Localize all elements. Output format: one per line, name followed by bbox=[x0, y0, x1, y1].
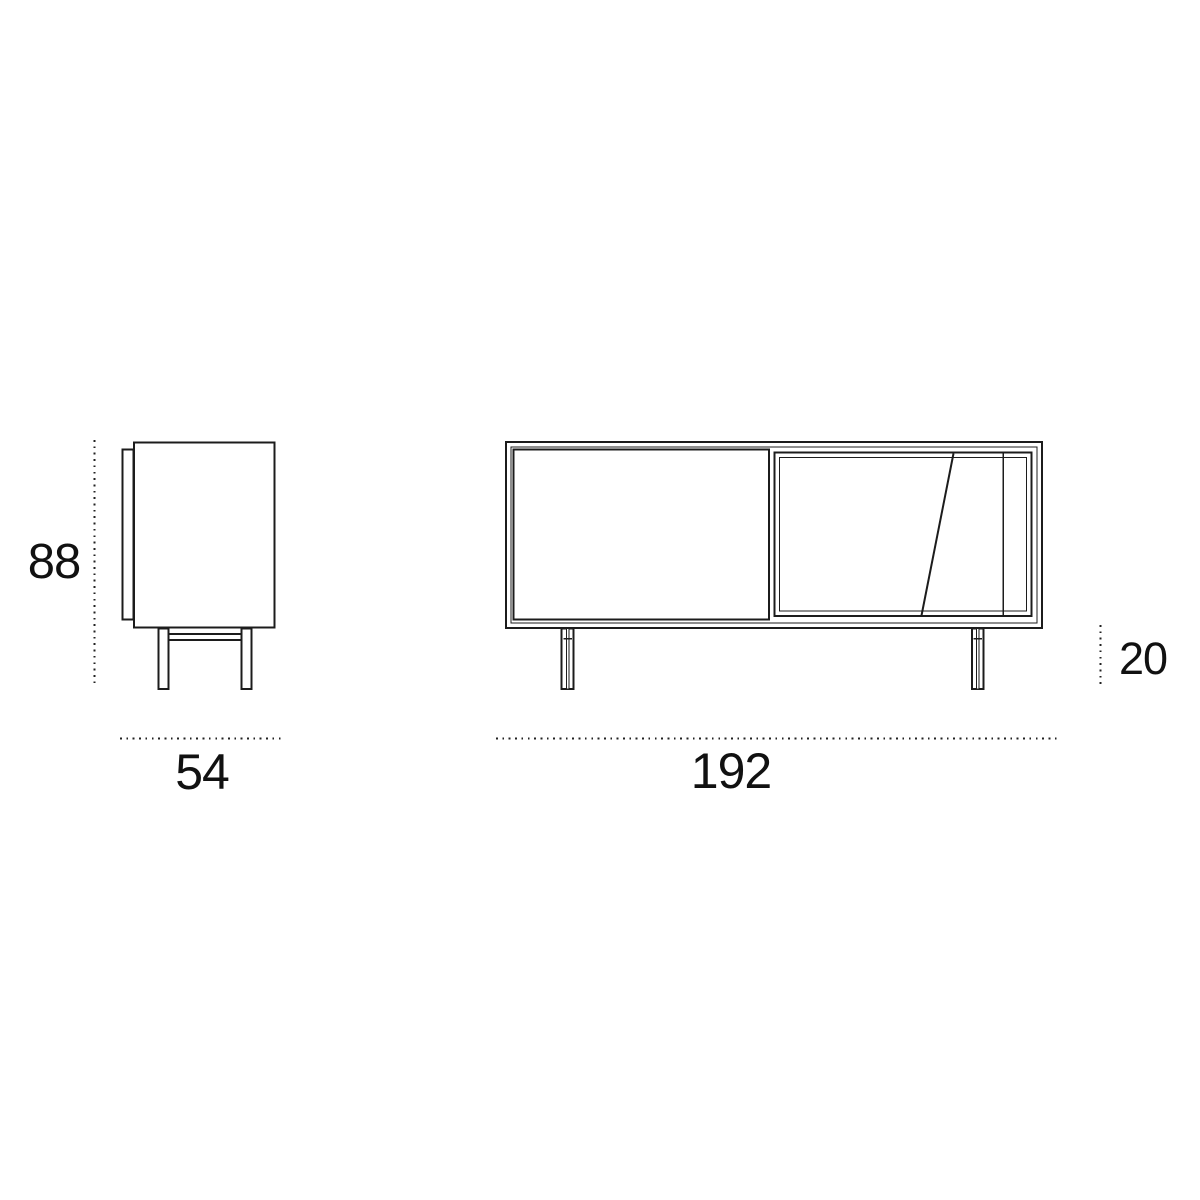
side-leg-rail bbox=[166, 634, 244, 640]
leg-height-dimension-label: 20 bbox=[1083, 636, 1200, 681]
furniture-dimension-drawing: 88 54 192 20 bbox=[0, 0, 1200, 1200]
front-view bbox=[506, 442, 1042, 689]
front-left-door bbox=[514, 450, 770, 620]
front-leg-left-inner bbox=[567, 629, 570, 690]
depth-dimension-label: 54 bbox=[142, 747, 262, 797]
height-dimension-label: 88 bbox=[0, 538, 108, 587]
side-back-panel bbox=[123, 450, 134, 620]
side-leg-right bbox=[242, 629, 252, 690]
side-leg-left bbox=[159, 629, 169, 690]
width-dimension-label: 192 bbox=[651, 746, 811, 796]
technical-drawing bbox=[0, 0, 1200, 1200]
side-body bbox=[134, 443, 275, 628]
front-leg-right bbox=[972, 629, 984, 690]
front-leg-left bbox=[562, 629, 574, 690]
side-view bbox=[123, 443, 275, 690]
front-right-door-frame bbox=[775, 453, 1032, 617]
front-leg-right-inner bbox=[977, 629, 980, 690]
